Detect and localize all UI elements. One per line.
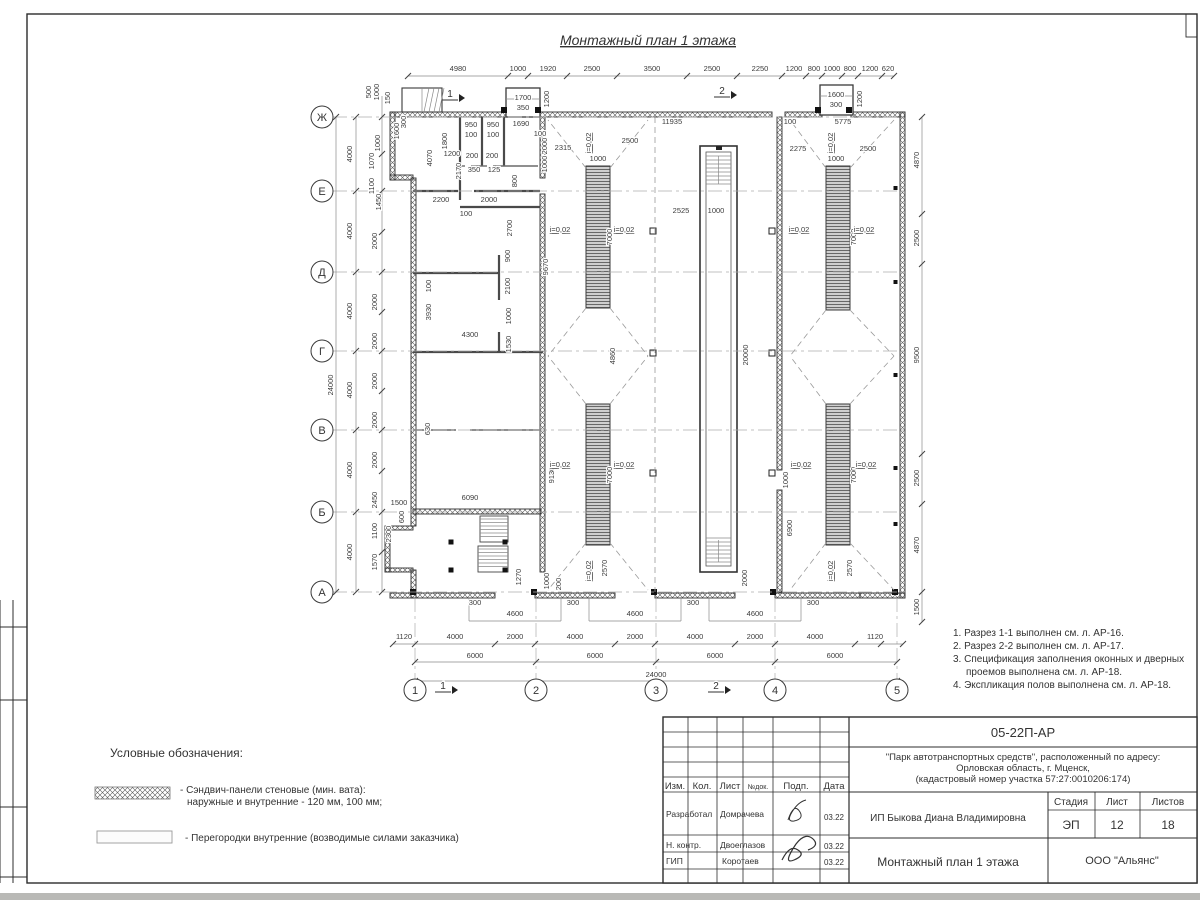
note-line: 2. Разрез 2-2 выполнен см. л. АР-17. xyxy=(953,641,1124,652)
row1-name: Домрачева xyxy=(720,809,764,819)
axis-bubble-label: Ж xyxy=(317,112,327,124)
drawing-title: Монтажный план 1 этажа xyxy=(877,855,1019,869)
dimension-label: 1000 xyxy=(510,64,527,73)
dimension-label: 4600 xyxy=(627,609,644,618)
dimension-label: 300 xyxy=(830,100,843,109)
dimension-label: 1200 xyxy=(862,64,879,73)
dimension-label: 100 xyxy=(424,280,433,293)
legend-swatch-sandwich-panel xyxy=(95,787,170,799)
dimension-label: 1000 xyxy=(540,156,549,173)
dimension-label: 4070 xyxy=(425,150,434,167)
dimension-label: 9130 xyxy=(547,467,556,484)
dimension-label: 2000 xyxy=(370,294,379,311)
dimension-label: 100 xyxy=(487,130,500,139)
note-line: проемов выполнена см. л. АР-18. xyxy=(966,667,1122,678)
dimension-label: 4000 xyxy=(345,146,354,163)
dimension-label: 100 xyxy=(465,130,478,139)
dimension-label: 1100 xyxy=(370,523,379,539)
dimension-label: 900 xyxy=(503,250,512,263)
dimension-label: 1690 xyxy=(513,119,530,128)
dimension-label: 2000 xyxy=(540,138,549,155)
dimension-label: 350 xyxy=(517,103,530,112)
dimension-label: 1000 xyxy=(824,64,841,73)
dimension-label: 2000 xyxy=(370,452,379,469)
dimension-label: 1200 xyxy=(444,149,461,158)
row1-role: Разработал xyxy=(666,809,712,819)
dimension-label: 125 xyxy=(488,165,501,174)
dimension-label: 800 xyxy=(510,175,519,188)
dimension-label: 7000 xyxy=(605,229,614,246)
dimension-label: 2000 xyxy=(747,632,764,641)
dimension-label: 1070 xyxy=(367,153,376,170)
dimension-label: 300 xyxy=(567,598,580,607)
section-mark-label: 1 xyxy=(440,681,446,692)
project-line3: (кадастровый номер участка 57:27:0010206… xyxy=(916,774,1131,785)
dimension-label: 4870 xyxy=(912,152,921,169)
slope-label: i=0,02 xyxy=(826,561,835,582)
slope-label: i=0,02 xyxy=(789,225,810,234)
dimension-label: 2700 xyxy=(505,220,514,237)
dimension-label: 200 xyxy=(466,151,479,160)
dimension-label: 950 xyxy=(465,120,478,129)
note-line: 1. Разрез 1-1 выполнен см. л. АР-16. xyxy=(953,628,1124,639)
axis-bubble-label: А xyxy=(318,587,326,599)
dimension-label: 1000 xyxy=(590,154,607,163)
axis-bubble-label: 1 xyxy=(412,685,418,697)
dimension-label: 4600 xyxy=(507,609,524,618)
notes-block: 1. Разрез 1-1 выполнен см. л. АР-16. 2. … xyxy=(953,628,1184,691)
section-mark-label: 2 xyxy=(719,86,725,97)
dimension-label: 2170 xyxy=(454,163,463,180)
dimension-label: 4860 xyxy=(608,348,617,365)
dimension-label: 6000 xyxy=(707,651,724,660)
dimension-label: 620 xyxy=(882,64,895,73)
dimension-label: 1600 xyxy=(828,90,845,99)
axis-bubble-label: В xyxy=(318,425,325,437)
note-line: 4. Экспликация полов выполнена см. л. АР… xyxy=(953,680,1171,691)
dimension-label: 300 xyxy=(807,598,820,607)
sheet-title: Монтажный план 1 этажа xyxy=(560,32,736,48)
dimension-label: 1000 xyxy=(781,472,790,489)
dimension-label: 1000 xyxy=(828,154,845,163)
dimension-label: 2000 xyxy=(481,195,498,204)
dimension-label: 4000 xyxy=(345,544,354,561)
stage-label: Стадия xyxy=(1054,797,1088,808)
section-mark-label: 2 xyxy=(713,681,719,692)
dimension-label: 350 xyxy=(468,165,481,174)
axis-bubble-label: Г xyxy=(319,346,325,358)
dimension-label: 4000 xyxy=(345,223,354,240)
dimension-label: 2000 xyxy=(507,632,524,641)
axis-bubble-label: 2 xyxy=(533,685,539,697)
dimension-label: 950 xyxy=(487,120,500,129)
dimension-label: 2500 xyxy=(584,64,601,73)
dimension-label: 9670 xyxy=(541,259,550,276)
dimension-label: 5775 xyxy=(835,117,852,126)
row2-date: 03.22 xyxy=(824,842,845,851)
dimension-label: 4000 xyxy=(345,462,354,479)
col-ndok: №док. xyxy=(748,784,769,791)
dimension-label: 800 xyxy=(844,64,857,73)
slope-label: i=0,02 xyxy=(550,460,571,469)
company-name: ООО "Альянс" xyxy=(1085,855,1159,867)
col-data: Дата xyxy=(823,781,845,792)
legend-swatch-partition xyxy=(97,831,172,843)
dimension-label: 200 xyxy=(486,151,499,160)
dimension-label: 1200 xyxy=(855,91,864,108)
dimension-label: 2570 xyxy=(600,560,609,577)
dimension-label: 1500 xyxy=(391,498,408,507)
dimension-label: 2000 xyxy=(627,632,644,641)
dimension-label: 2000 xyxy=(370,412,379,429)
dimension-label: 1530 xyxy=(504,336,513,353)
axis-bubble-label: Д xyxy=(318,267,326,279)
legend-item1-line2: наружные и внутренние - 120 мм, 100 мм; xyxy=(187,797,382,808)
dimension-label: 1120 xyxy=(867,632,883,641)
dimension-label: 2275 xyxy=(790,144,807,153)
dimension-label: 1000 xyxy=(373,135,382,152)
slope-label: i=0,02 xyxy=(826,133,835,154)
slope-label: i=0,02 xyxy=(614,225,635,234)
dimension-label: 1000 xyxy=(372,84,381,101)
project-line1: "Парк автотранспортных средств", располо… xyxy=(886,752,1161,763)
dimension-label: 100 xyxy=(460,209,473,218)
dimension-label: 2570 xyxy=(845,560,854,577)
dimension-label: 300 xyxy=(469,598,482,607)
stage-value: ЭП xyxy=(1062,818,1079,832)
axis-bubble-label: Б xyxy=(318,507,325,519)
col-izm: Изм. xyxy=(665,781,685,792)
sheets-value: 18 xyxy=(1161,818,1175,832)
dimension-label: 1700 xyxy=(515,93,532,102)
dimension-label: 1120 xyxy=(396,632,412,641)
dimension-label: 1920 xyxy=(540,64,557,73)
col-podp: Подп. xyxy=(783,781,808,792)
dimension-label: 4000 xyxy=(687,632,704,641)
sheets-label: Листов xyxy=(1152,797,1185,808)
dimension-label: 100 xyxy=(784,117,797,126)
dimension-label: 1100 xyxy=(367,178,376,194)
slope-label: i=0,02 xyxy=(614,460,635,469)
legend: Условные обозначения: - Сэндвич-панели с… xyxy=(95,746,459,844)
dimension-label: 2200 xyxy=(433,195,450,204)
dimension-label: 6090 xyxy=(462,493,479,502)
dimension-label: 6000 xyxy=(587,651,604,660)
dimension-label: 800 xyxy=(808,64,821,73)
row3-role: ГИП xyxy=(666,856,683,866)
axis-bubble-label: Е xyxy=(318,186,325,198)
dimension-label: 2000 xyxy=(740,570,749,587)
dimension-label: 2500 xyxy=(704,64,721,73)
dimension-label: 1000 xyxy=(708,206,725,215)
dimension-label: 2500 xyxy=(860,144,877,153)
dimension-label: 4980 xyxy=(450,64,467,73)
dimension-label: 24000 xyxy=(646,670,667,679)
dimension-label: 9500 xyxy=(912,347,921,364)
dimension-label: 2450 xyxy=(370,492,379,509)
dimension-label: 6900 xyxy=(785,520,794,537)
plan-linework xyxy=(333,85,905,679)
dimension-label: 2315 xyxy=(555,143,572,152)
dimension-label: 2100 xyxy=(503,278,512,295)
dimension-label: 630 xyxy=(423,423,432,436)
dimension-label: 1000 xyxy=(504,308,513,325)
doc-number: 05-22П-АР xyxy=(991,725,1055,740)
slope-label: i=0,02 xyxy=(856,460,877,469)
dimension-label: 1450 xyxy=(374,194,383,211)
dimension-label: 150 xyxy=(383,92,392,105)
slope-label: i=0,02 xyxy=(584,561,593,582)
project-line2: Орловская область, г. Мценск, xyxy=(956,763,1090,774)
dimension-label: 7000 xyxy=(605,467,614,484)
dimension-label: 4000 xyxy=(567,632,584,641)
sheet-label: Лист xyxy=(1106,797,1128,808)
row2-name: Двоеглазов xyxy=(720,840,766,850)
dimension-label: 600 xyxy=(397,511,406,524)
dimension-label: 6000 xyxy=(467,651,484,660)
dimension-label: 11935 xyxy=(662,117,682,126)
row2-role: Н. контр. xyxy=(666,840,701,850)
drawing-sheet: 4980100019202500350025002250120080010008… xyxy=(0,0,1200,900)
dimension-label: 2500 xyxy=(912,230,921,247)
dimension-label: 2000 xyxy=(370,373,379,390)
dimension-label: 4000 xyxy=(345,303,354,320)
legend-item2: - Перегородки внутренние (возводимые сил… xyxy=(185,833,459,844)
dimension-label: 1200 xyxy=(786,64,803,73)
dimension-label: 2000 xyxy=(370,333,379,350)
col-list: Лист xyxy=(720,781,741,792)
dimension-label: 300 xyxy=(399,116,408,129)
legend-item1-line1: - Сэндвич-панели стеновые (мин. вата): xyxy=(180,785,366,796)
dimension-label: 1200 xyxy=(542,91,551,108)
dimension-label: 1270 xyxy=(514,569,523,586)
dimension-label: 2500 xyxy=(622,136,639,145)
legend-heading: Условные обозначения: xyxy=(110,746,243,760)
dimension-label: 1570 xyxy=(370,554,379,571)
slope-label: i=0,02 xyxy=(854,225,875,234)
axis-bubble-label: 3 xyxy=(653,685,659,697)
dimension-label: 200 xyxy=(554,578,563,591)
floor-plan-canvas: 4980100019202500350025002250120080010008… xyxy=(0,0,1200,900)
sheet-value: 12 xyxy=(1110,818,1124,832)
dimension-label: 100 xyxy=(534,129,547,138)
dimension-label: 7000 xyxy=(849,467,858,484)
dimension-label: 1000 xyxy=(542,573,551,590)
dimension-label: 1800 xyxy=(440,133,449,150)
dimension-label: 6000 xyxy=(827,651,844,660)
dimension-label: 3500 xyxy=(644,64,661,73)
dimension-label: 4000 xyxy=(447,632,464,641)
plan-annotations: 4980100019202500350025002250120080010008… xyxy=(311,64,925,701)
note-line: 3. Спецификация заполнения оконных и две… xyxy=(953,653,1184,665)
row1-date: 03.22 xyxy=(824,813,845,822)
row3-name: Коротаев xyxy=(722,856,759,866)
dimension-label: 3930 xyxy=(424,304,433,321)
dimension-label: 20000 xyxy=(741,345,750,366)
dimension-label: 4600 xyxy=(747,609,764,618)
dimension-label: 300 xyxy=(687,598,700,607)
slope-label: i=0,02 xyxy=(584,133,593,154)
dimension-label: 4000 xyxy=(345,382,354,399)
dimension-label: 4000 xyxy=(807,632,824,641)
axis-bubble-label: 4 xyxy=(772,685,778,697)
col-kol: Кол. xyxy=(693,781,712,792)
dimension-label: 2500 xyxy=(912,470,921,487)
dimension-label: 24000 xyxy=(326,375,335,396)
client-name: ИП Быкова Диана Владимировна xyxy=(870,813,1026,824)
dimension-label: 1500 xyxy=(912,599,921,616)
axis-bubble-label: 5 xyxy=(894,685,900,697)
dimension-label: 4300 xyxy=(462,330,479,339)
dimension-label: 2250 xyxy=(752,64,769,73)
dimension-label: 2525 xyxy=(673,206,690,215)
dimension-label: 2000 xyxy=(370,233,379,250)
dimension-label: 4870 xyxy=(912,537,921,554)
dimension-label: 2300 xyxy=(384,526,393,543)
slope-label: i=0,02 xyxy=(550,225,571,234)
slope-label: i=0,02 xyxy=(791,460,812,469)
row3-date: 03.22 xyxy=(824,858,845,867)
section-mark-label: 1 xyxy=(447,89,453,100)
